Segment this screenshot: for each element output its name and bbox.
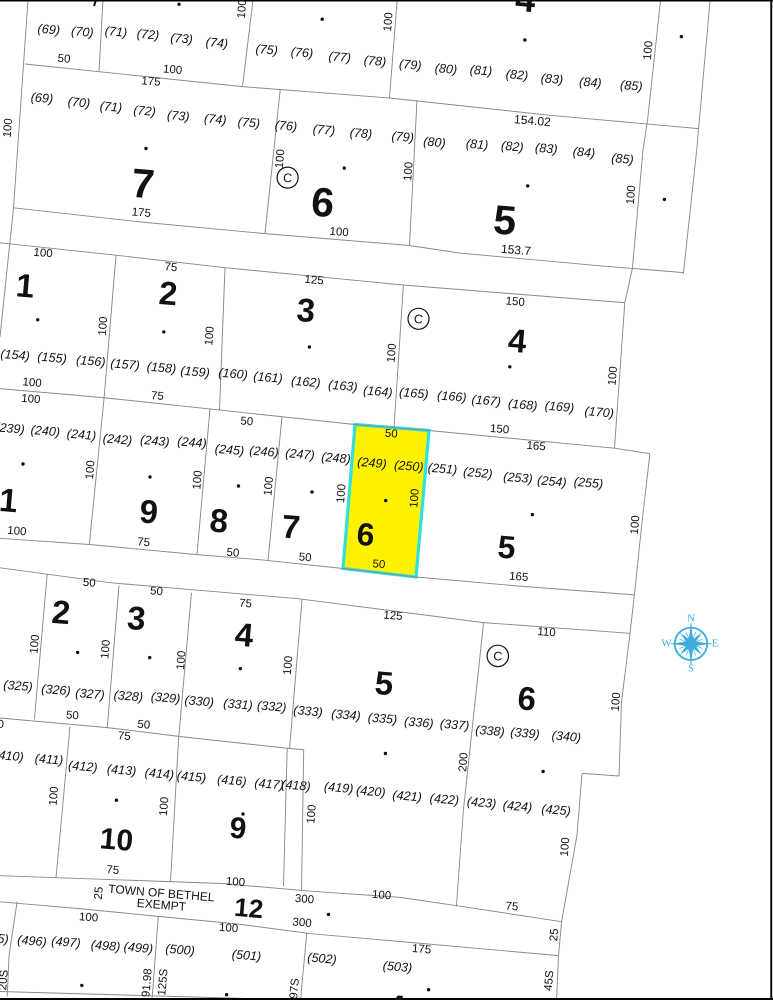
svg-text:C: C [283,171,293,186]
svg-text:(81): (81) [469,63,492,79]
svg-text:4: 4 [234,616,256,654]
svg-text:50: 50 [150,585,164,598]
svg-text:(412): (412) [68,758,98,774]
svg-text:(247): (247) [285,446,315,462]
svg-text:(80): (80) [434,61,457,77]
svg-text:6: 6 [355,516,376,553]
svg-text:2: 2 [158,274,179,312]
svg-text:(73): (73) [170,31,193,47]
svg-text:(84): (84) [579,75,602,91]
svg-text:20S: 20S [0,969,11,991]
svg-text:100: 100 [372,889,392,903]
svg-text:(80): (80) [423,135,446,151]
svg-text:(335): (335) [367,711,397,727]
svg-text:50: 50 [82,577,96,590]
svg-text:100: 100 [382,12,396,32]
svg-text:(166): (166) [437,388,467,404]
svg-text:97S: 97S [288,977,302,999]
svg-text:(332): (332) [256,698,286,714]
svg-text:(76): (76) [274,118,297,134]
svg-text:100: 100 [7,525,27,539]
svg-text:100: 100 [33,247,53,261]
svg-text:(503): (503) [382,959,412,975]
svg-text:(422): (422) [429,791,459,807]
svg-text:(71): (71) [99,99,122,115]
svg-text:(248): (248) [321,450,351,466]
svg-text:(154): (154) [0,347,30,363]
svg-text:50: 50 [384,428,398,441]
svg-text:175: 175 [141,75,161,89]
svg-text:(423): (423) [466,795,496,811]
svg-text:100: 100 [559,837,573,857]
svg-text:(78): (78) [349,126,372,142]
svg-text:C: C [493,649,503,664]
svg-text:100: 100 [2,118,16,138]
svg-text:(81): (81) [465,137,488,153]
svg-text:3: 3 [295,291,316,329]
svg-text:(334): (334) [331,707,361,723]
svg-text:(255): (255) [573,475,603,491]
svg-text:C: C [413,312,423,327]
svg-text:50: 50 [240,415,254,428]
svg-text:2: 2 [50,593,71,631]
svg-text:100: 100 [28,634,42,654]
svg-text:100: 100 [386,343,400,363]
svg-text:(85): (85) [611,151,634,167]
svg-text:(424): (424) [502,798,532,814]
svg-text:(420): (420) [356,783,386,799]
svg-text:110: 110 [537,626,556,639]
svg-text:(249): (249) [357,455,387,471]
svg-text:(253): (253) [503,470,533,486]
svg-text:5): 5) [0,932,9,947]
svg-text:(73): (73) [167,108,190,124]
svg-text:200: 200 [457,752,471,772]
svg-text:(239): (239) [0,420,25,436]
svg-text:(74): (74) [204,112,227,128]
svg-text:(72): (72) [133,103,156,119]
svg-text:(82): (82) [501,139,524,155]
svg-text:(161): (161) [253,369,283,385]
svg-text:100: 100 [99,639,113,659]
svg-text:25: 25 [93,886,106,900]
svg-text:(497): (497) [51,934,81,950]
svg-text:(246): (246) [249,444,279,460]
svg-text:100: 100 [97,316,111,336]
svg-text:100: 100 [607,366,621,386]
svg-text:(170): (170) [584,404,614,420]
svg-text:6: 6 [310,179,337,227]
svg-text:100: 100 [225,876,245,890]
svg-text:100: 100 [329,226,349,240]
svg-text:(413): (413) [106,762,136,778]
svg-text:25: 25 [548,928,561,942]
svg-text:(498): (498) [90,938,120,954]
svg-text:153.7: 153.7 [500,242,531,258]
svg-text:(78): (78) [363,53,386,69]
svg-text:45S: 45S [543,970,557,992]
svg-text:(502): (502) [307,950,337,966]
svg-text:(328): (328) [113,688,143,704]
svg-text:(75): (75) [255,42,278,58]
svg-text:5: 5 [496,529,517,566]
svg-text:(329): (329) [150,690,180,706]
svg-text:125: 125 [383,610,403,624]
svg-text:(83): (83) [535,141,558,157]
svg-text:(72): (72) [136,27,159,43]
svg-text:(416): (416) [217,772,247,788]
svg-text:12: 12 [233,892,264,924]
svg-text:(69): (69) [37,22,60,38]
svg-text:75: 75 [106,864,120,877]
svg-text:50: 50 [372,558,386,571]
svg-text:(240): (240) [30,423,60,439]
svg-text:(71): (71) [104,24,127,40]
svg-text:(415): (415) [176,769,206,785]
svg-text:165: 165 [526,440,546,454]
svg-text:(325): (325) [3,678,33,694]
svg-text:100: 100 [282,655,296,675]
svg-text:(79): (79) [391,129,414,145]
svg-text:100: 100 [402,161,416,181]
svg-text:S: S [688,664,694,675]
svg-text:125: 125 [304,274,324,288]
svg-text:(339): (339) [510,725,540,741]
svg-text:(336): (336) [404,714,434,730]
svg-text:75: 75 [505,900,519,913]
svg-text:75: 75 [164,261,178,274]
svg-text:100: 100 [84,460,98,480]
svg-text:(425): (425) [541,802,571,818]
svg-text:100: 100 [158,796,172,816]
svg-text:100: 100 [21,393,41,407]
svg-text:75: 75 [137,536,151,549]
svg-text:50: 50 [66,709,80,722]
svg-text:(418): (418) [281,777,311,793]
svg-text:(496): (496) [17,933,47,949]
svg-text:(82): (82) [505,67,528,83]
svg-text:W: W [662,638,672,649]
svg-text:(251): (251) [427,461,457,477]
svg-text:(243): (243) [140,433,170,449]
svg-text:(69): (69) [30,90,53,106]
svg-text:4: 4 [514,0,537,20]
svg-text:9: 9 [138,492,159,530]
svg-text:(337): (337) [439,717,469,733]
svg-text:100: 100 [22,376,42,390]
svg-text:100: 100 [625,185,639,205]
svg-text:100: 100 [78,911,98,925]
svg-text:100: 100 [191,470,205,490]
svg-text:(169): (169) [544,399,574,415]
svg-text:125S: 125S [156,968,170,996]
svg-text:6: 6 [516,679,537,717]
svg-text:(252): (252) [463,465,493,481]
svg-text:100: 100 [408,488,422,508]
svg-text:100: 100 [335,484,349,504]
svg-text:(165): (165) [399,385,429,401]
svg-text:(85): (85) [620,78,643,94]
svg-text:(77): (77) [312,122,335,138]
svg-text:300: 300 [294,893,314,907]
svg-text:(155): (155) [37,350,67,366]
svg-text:(158): (158) [146,360,176,376]
svg-text:7: 7 [280,508,301,546]
svg-text:100: 100 [305,804,319,824]
svg-text:4: 4 [385,987,407,1000]
svg-text:100: 100 [629,515,643,535]
svg-text:(241): (241) [66,427,96,443]
svg-text:(79): (79) [399,57,422,73]
svg-text:(499): (499) [123,940,153,956]
svg-text:(76): (76) [290,45,313,61]
svg-text:(242): (242) [102,431,132,447]
svg-text:150: 150 [505,295,525,309]
svg-text:(168): (168) [507,397,537,413]
svg-text:(244): (244) [177,434,207,450]
svg-text:75: 75 [117,730,131,743]
svg-text:(340): (340) [551,728,581,744]
svg-text:(245): (245) [214,442,244,458]
svg-text:(70): (70) [71,24,94,40]
svg-text:5: 5 [373,664,394,702]
svg-text:5: 5 [492,196,519,244]
svg-text:(338): (338) [475,723,505,739]
svg-text:100: 100 [175,650,189,670]
svg-text:50: 50 [298,551,312,564]
svg-text:75: 75 [239,597,253,610]
svg-text:(164): (164) [363,383,393,399]
svg-text:(254): (254) [537,473,567,489]
svg-text:8: 8 [208,501,229,539]
svg-text:(333): (333) [293,703,323,719]
svg-text:(156): (156) [76,353,106,369]
svg-text:100: 100 [274,149,288,169]
svg-text:100: 100 [203,326,217,346]
svg-text:300: 300 [292,916,312,930]
svg-text:(77): (77) [328,49,351,65]
svg-text:(84): (84) [572,145,595,161]
svg-text:N: N [687,614,695,625]
svg-text:(327): (327) [75,686,105,702]
svg-text:(83): (83) [540,71,563,87]
svg-text:10: 10 [98,822,134,858]
svg-text:(160): (160) [218,366,248,382]
svg-text:50: 50 [57,53,71,66]
svg-text:(331): (331) [223,696,253,712]
svg-text:100: 100 [218,922,238,936]
svg-text:50: 50 [226,547,240,560]
svg-text:100: 100 [642,40,656,60]
svg-text:1: 1 [15,266,36,304]
svg-text:91.98: 91.98 [140,968,154,998]
svg-text:(414): (414) [144,766,174,782]
svg-text:4: 4 [507,322,529,360]
svg-text:(162): (162) [291,374,321,390]
svg-text:(159): (159) [180,364,210,380]
svg-text:175: 175 [131,206,151,220]
svg-text:7: 7 [130,160,157,208]
svg-text:100: 100 [236,0,250,19]
svg-text:(157): (157) [110,356,140,372]
svg-text:(163): (163) [328,378,358,394]
svg-text:100: 100 [163,63,183,77]
svg-text:(410): (410) [0,748,24,764]
svg-text:75: 75 [151,390,165,403]
svg-text:(421): (421) [392,788,422,804]
svg-text:150: 150 [489,423,509,437]
svg-text:175: 175 [412,943,432,957]
svg-text:165: 165 [509,571,529,585]
svg-text:100: 100 [610,692,624,712]
svg-text:(74): (74) [205,35,228,51]
svg-text:100: 100 [262,476,276,496]
svg-text:(75): (75) [237,115,260,131]
svg-text:(326): (326) [41,682,71,698]
svg-text:(250): (250) [394,458,424,474]
svg-text:100: 100 [48,786,62,806]
svg-text:(500): (500) [165,942,195,958]
svg-text:E: E [712,638,718,649]
svg-text:3: 3 [126,599,147,637]
svg-text:(419): (419) [323,780,353,796]
svg-text:(501): (501) [231,947,261,963]
svg-text:(70): (70) [67,95,90,111]
svg-text:9: 9 [228,812,247,846]
svg-text:(330): (330) [184,693,214,709]
svg-text:(167): (167) [471,393,501,409]
svg-text:(417): (417) [254,776,284,792]
svg-text:(411): (411) [34,751,64,767]
svg-text:50: 50 [137,719,151,732]
svg-text:1: 1 [0,481,19,519]
